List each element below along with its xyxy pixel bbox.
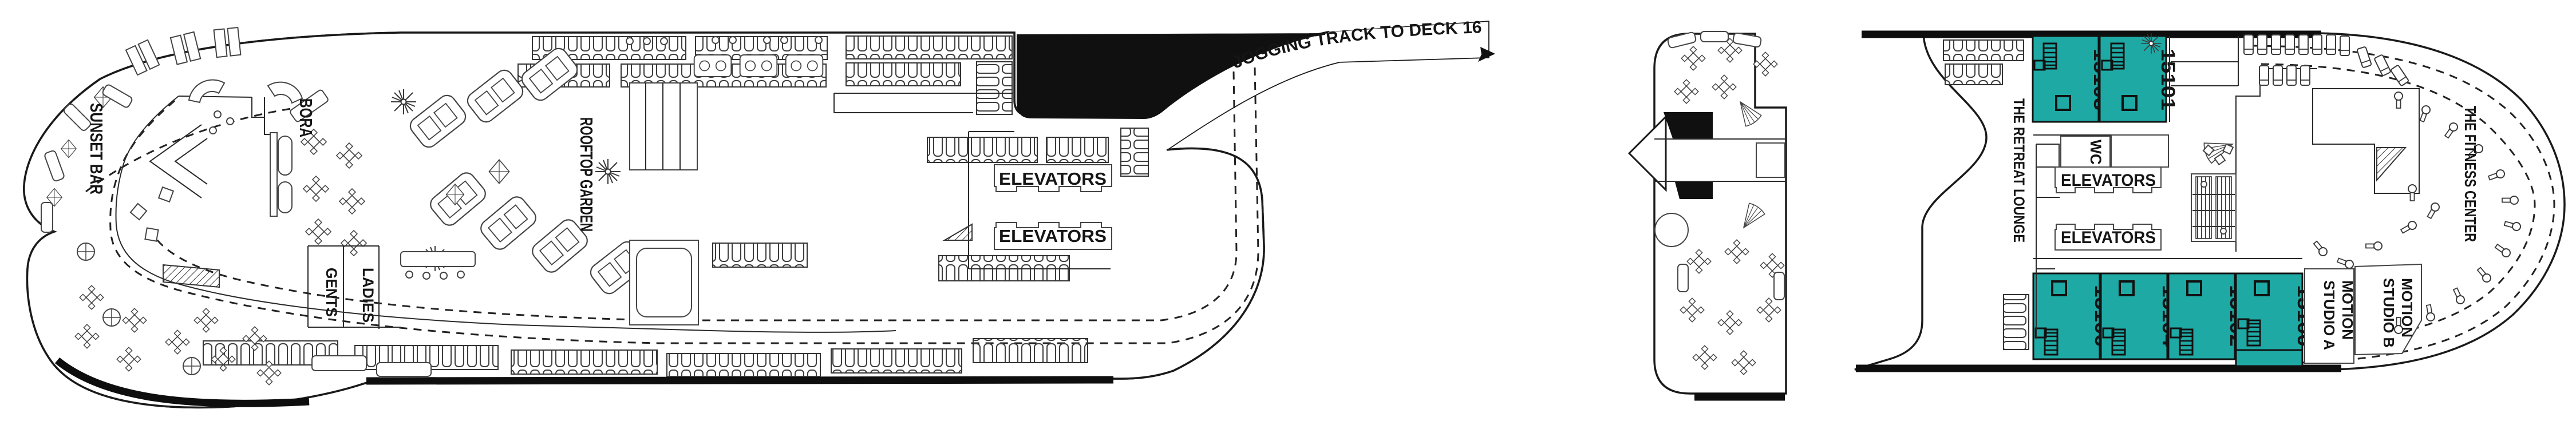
room-label-retreat-lounge: THE RETREAT LOUNGE <box>2010 98 2028 243</box>
room-label-motion-studio-b: STUDIO B <box>2380 278 2397 348</box>
venue-label-rooftop-garden: ROOFTOP GARDEN <box>576 117 596 232</box>
lounger-row <box>831 349 962 373</box>
venue-label-sunset-bar: SUNSET BAR <box>86 103 106 194</box>
lounger-row <box>1121 128 1148 176</box>
lounger-row <box>977 62 1012 114</box>
deck-plan-page: JOGGING TRACK TO DECK 16 <box>0 0 2576 429</box>
cabin-15100[interactable]: 15100 <box>2236 273 2315 366</box>
lounger-row <box>713 243 807 267</box>
escalators <box>2191 174 2236 241</box>
room-label-wc: WC <box>2087 140 2104 165</box>
room-label-elevators: ELEVATORS <box>999 226 1107 246</box>
room-label-elevators: ELEVATORS <box>2061 171 2156 190</box>
lounger-row <box>511 350 657 374</box>
lounger-row <box>846 63 961 86</box>
room-label-motion-studio-a: MOTION <box>2339 280 2356 340</box>
middle-deck-section <box>1629 31 1786 397</box>
lounger-row <box>667 353 820 376</box>
deck-continues-arrow-icon <box>1629 117 1666 190</box>
lounger-row <box>846 36 1012 59</box>
left-deck-section: JOGGING TRACK TO DECK 16 <box>24 18 1511 407</box>
middle-cafe-furniture <box>1668 31 1784 375</box>
cabin-15101[interactable]: 15101 <box>2100 36 2179 122</box>
right-deck-section: 15103 15101 15106 15104 15102 <box>1855 33 2565 370</box>
room-label-gents: GENTS <box>323 268 340 317</box>
venue-label-bora: BORA <box>296 98 316 137</box>
whirlpool <box>1655 213 1688 247</box>
deck-plan-canvas: JOGGING TRACK TO DECK 16 <box>0 0 2576 429</box>
room-label-ladies: LADIES <box>359 268 377 323</box>
room-label-motion-studio-a: STUDIO A <box>2321 280 2338 350</box>
room-label-motion-studio-b: MOTION <box>2399 278 2416 337</box>
lounger-row <box>1945 64 2002 85</box>
cabin-number: 15101 <box>2157 49 2179 110</box>
room-label-elevators: ELEVATORS <box>999 169 1107 189</box>
lounger-row <box>2004 295 2029 349</box>
lounger-row <box>1046 137 1108 162</box>
hull-bottom-edge <box>366 380 1113 381</box>
room-label-elevators: ELEVATORS <box>2061 228 2156 247</box>
venue-label-fitness-center: THE FITNESS CENTER <box>2462 106 2479 242</box>
lounger-row <box>1943 40 2024 61</box>
lounger-row <box>927 137 1037 162</box>
lounger-row <box>973 339 1088 363</box>
